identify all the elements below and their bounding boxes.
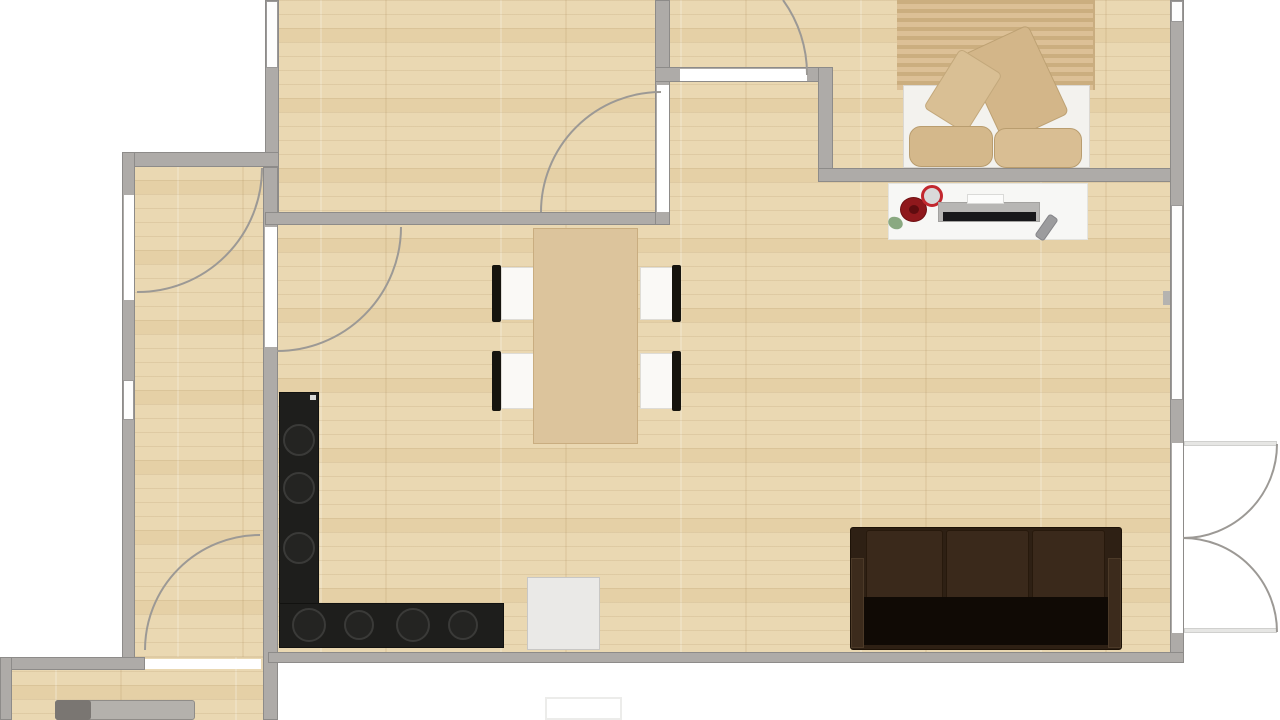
wall-bedroom-bottom: [818, 168, 1184, 182]
window-hall-left: [123, 380, 134, 420]
window-room2-left: [266, 1, 278, 68]
window-right-mid: [1171, 205, 1183, 400]
bottom-room-furniture-dark: [55, 700, 91, 720]
wall-hall-top: [122, 152, 279, 167]
opening-bedroom-door: [680, 69, 807, 81]
kitchen-counter-chip: [310, 395, 316, 400]
opening-room2-door: [657, 85, 669, 212]
bed-cushion-left: [909, 126, 993, 167]
wall-bottom-main: [268, 652, 1184, 663]
arc-balcony-upper: [1183, 444, 1277, 538]
wall-bedroom-west: [818, 67, 833, 182]
kitchen-burner-6: [396, 608, 430, 642]
kitchen-burner-3: [283, 532, 315, 564]
chair-back-tl: [492, 265, 501, 322]
opening-hall-living: [265, 227, 277, 347]
kitchen-burner-4: [292, 608, 326, 642]
kitchen-burner-2: [283, 472, 315, 504]
kitchen-burner-7: [448, 610, 478, 640]
chair-seat-tr: [640, 267, 674, 320]
outside-doormat: [545, 697, 622, 720]
bed-cushion-right: [994, 128, 1082, 168]
chair-seat-tl: [501, 267, 535, 320]
opening-hall-bottom: [145, 659, 261, 669]
balcony-door-leaf-top: [1184, 441, 1277, 446]
sofa-armrest-left: [851, 558, 864, 648]
sofa-cushion-1: [866, 530, 943, 600]
floor-hallway: [122, 152, 277, 663]
wall-room3-left: [0, 657, 12, 720]
chair-back-bl: [492, 351, 501, 411]
kitchen-burner-1: [283, 424, 315, 456]
chair-seat-bl: [501, 353, 535, 409]
balcony-door-leaf-bottom: [1184, 628, 1277, 633]
chair-back-br: [672, 351, 681, 411]
window-right-top: [1171, 1, 1183, 22]
opening-balcony-doors: [1172, 443, 1183, 633]
arc-balcony-lower: [1183, 538, 1277, 632]
opening-entry-door: [124, 195, 134, 300]
sofa-cushion-2: [946, 530, 1029, 600]
desk-tv-screen: [943, 212, 1036, 221]
desk-tv-label: [967, 194, 1004, 204]
sofa-cushion-3: [1032, 530, 1105, 600]
kitchen-appliance: [527, 577, 600, 650]
window-handle-tick: [1163, 291, 1170, 305]
floor-plan: [0, 0, 1280, 720]
wall-room3-top: [0, 657, 145, 670]
desk-rose-center: [909, 205, 919, 214]
dining-table: [533, 228, 638, 444]
sofa-seat-shadow: [858, 597, 1114, 645]
chair-back-tr: [672, 265, 681, 322]
chair-seat-br: [640, 353, 674, 409]
kitchen-burner-5: [344, 610, 374, 640]
sofa-armrest-right: [1108, 558, 1121, 648]
wall-room2-bottom: [265, 212, 670, 225]
